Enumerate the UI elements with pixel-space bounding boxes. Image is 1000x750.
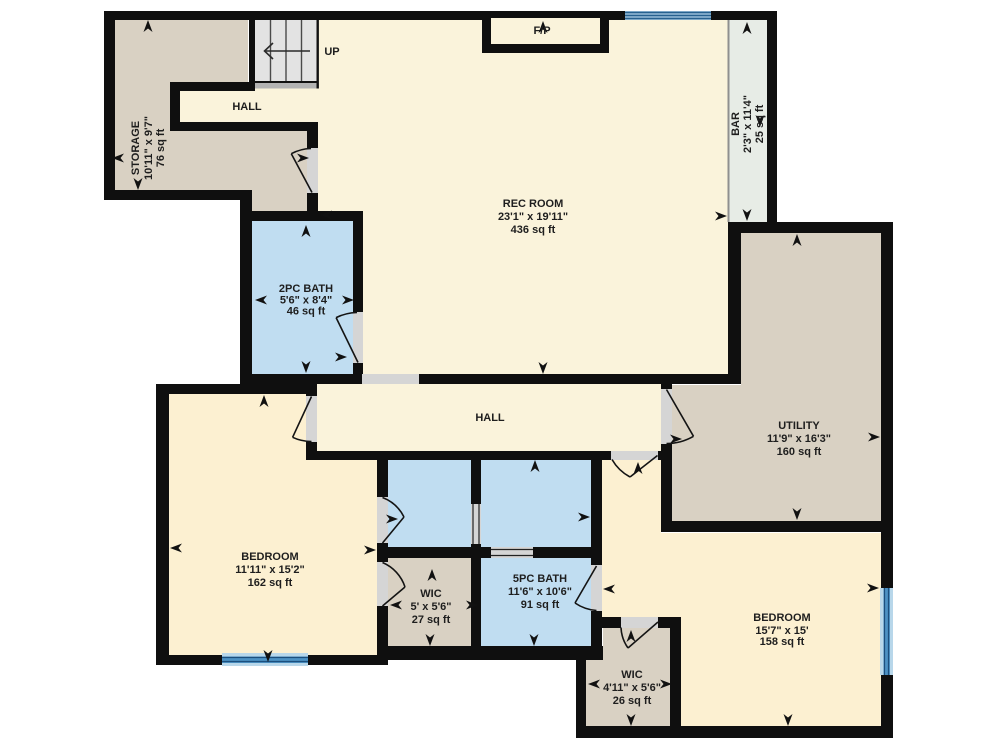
- svg-text:BAR: BAR: [730, 112, 742, 136]
- svg-text:4'11" x 5'6": 4'11" x 5'6": [603, 682, 661, 694]
- svg-text:UTILITY: UTILITY: [778, 420, 820, 432]
- svg-text:46 sq ft: 46 sq ft: [287, 306, 326, 318]
- svg-text:11'6" x 10'6": 11'6" x 10'6": [508, 586, 572, 598]
- svg-text:160 sq ft: 160 sq ft: [777, 446, 822, 458]
- svg-text:11'9" x 16'3": 11'9" x 16'3": [767, 433, 831, 445]
- svg-text:2PC BATH: 2PC BATH: [279, 283, 333, 295]
- svg-text:76 sq ft: 76 sq ft: [155, 128, 167, 167]
- svg-text:162 sq ft: 162 sq ft: [248, 577, 293, 589]
- svg-text:F/P: F/P: [533, 25, 550, 37]
- svg-text:2'3" x 11'4": 2'3" x 11'4": [742, 95, 754, 153]
- svg-text:BEDROOM: BEDROOM: [241, 551, 298, 563]
- svg-text:UP: UP: [324, 46, 339, 58]
- svg-text:BEDROOM: BEDROOM: [753, 612, 810, 624]
- svg-text:25 sq ft: 25 sq ft: [754, 104, 766, 143]
- svg-text:HALL: HALL: [232, 101, 262, 113]
- svg-text:91 sq ft: 91 sq ft: [521, 599, 560, 611]
- svg-text:STORAGE: STORAGE: [130, 121, 142, 175]
- svg-text:REC ROOM: REC ROOM: [503, 198, 564, 210]
- svg-text:23'1" x 19'11": 23'1" x 19'11": [498, 211, 568, 223]
- svg-text:27 sq ft: 27 sq ft: [412, 614, 451, 626]
- svg-text:WIC: WIC: [420, 588, 441, 600]
- svg-text:26 sq ft: 26 sq ft: [613, 695, 652, 707]
- svg-text:HALL: HALL: [475, 412, 505, 424]
- svg-text:11'11" x 15'2": 11'11" x 15'2": [235, 564, 305, 576]
- svg-text:5PC BATH: 5PC BATH: [513, 573, 567, 585]
- svg-text:WIC: WIC: [621, 669, 642, 681]
- svg-text:5' x 5'6": 5' x 5'6": [410, 601, 451, 613]
- svg-text:436 sq ft: 436 sq ft: [511, 224, 556, 236]
- svg-text:158 sq ft: 158 sq ft: [760, 636, 805, 648]
- svg-text:10'11" x 9'7": 10'11" x 9'7": [143, 116, 155, 180]
